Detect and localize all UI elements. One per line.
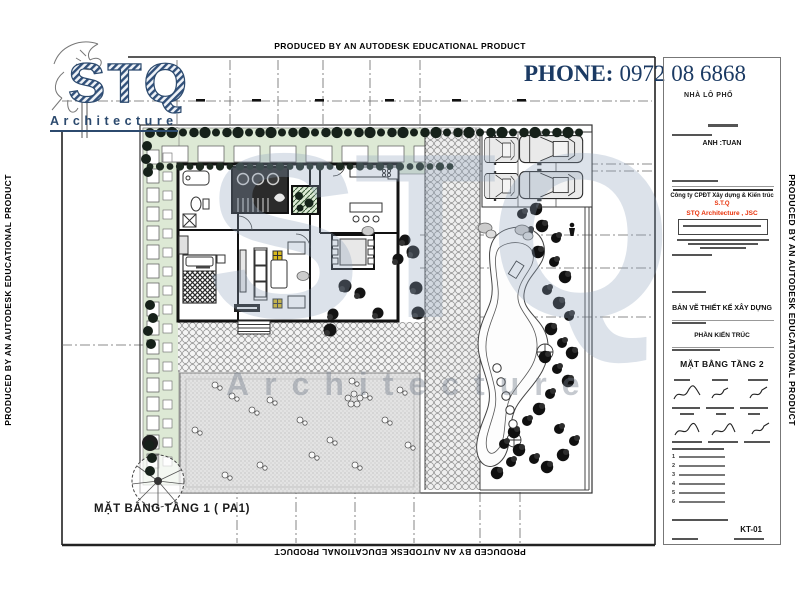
drawing-number: KT-01 — [664, 525, 780, 534]
autodesk-notice-bottom: PRODUCED BY AN AUTODESK EDUCATIONAL PROD… — [0, 547, 800, 557]
note-row: 1 — [672, 454, 725, 460]
divider-rule — [672, 320, 774, 321]
plan-caption: MẶT BẰNG TẦNG 1 ( PA1) — [94, 503, 250, 515]
micro-text-bar — [672, 134, 712, 136]
micro-text-bar — [672, 254, 712, 256]
micro-text-bar — [740, 407, 768, 409]
company-logo: STQ Architecture — [40, 38, 210, 140]
micro-text-bar — [706, 407, 734, 409]
micro-text-bar — [708, 441, 738, 443]
micro-text-bar — [716, 413, 726, 415]
micro-text-bar — [680, 413, 694, 415]
micro-text-bar — [672, 322, 706, 324]
company-stamp-box — [678, 219, 768, 235]
note-row: 5 — [672, 490, 725, 496]
pool-terrace — [180, 373, 420, 493]
note-row: 4 — [672, 481, 725, 487]
micro-text-bar — [672, 448, 724, 450]
micro-text-bar — [688, 243, 758, 245]
logo-word: Architecture — [50, 114, 178, 132]
micro-text-bar — [744, 441, 770, 443]
logo-letters-text: STQ — [68, 51, 189, 114]
title-block: ANH :TUAN Công ty CPĐT Xây dựng & Kiến t… — [663, 57, 781, 545]
drawing-title: MẶT BẰNG TẦNG 2 — [664, 359, 780, 369]
autodesk-notice-left: PRODUCED BY AN AUTODESK EDUCATIONAL PROD… — [3, 174, 13, 426]
micro-text-bar — [748, 413, 760, 415]
planter-box — [292, 186, 318, 214]
micro-text-bar — [673, 189, 773, 191]
micro-text-bar — [708, 124, 738, 127]
doc-type: BẢN VẼ THIẾT KẾ XÂY DỰNG — [664, 305, 780, 312]
company-name-vi: Công ty CPĐT Xây dựng & Kiến trúc — [664, 193, 780, 199]
micro-text-bar — [672, 349, 720, 351]
drawing-sheet: { "notice": { "autodesk": "PRODUCED BY A… — [0, 0, 800, 600]
discipline: PHẦN KIẾN TRÚC — [664, 332, 780, 339]
micro-text-bar — [712, 379, 728, 381]
signature-row-1 — [670, 385, 778, 403]
note-row: 6 — [672, 499, 725, 505]
note-row: 2 — [672, 463, 725, 469]
micro-text-bar — [672, 441, 702, 443]
signature-row-2 — [670, 420, 778, 440]
company-name-en: STQ Architecture , JSC — [664, 210, 780, 217]
micro-text-bar — [672, 407, 700, 409]
micro-text-bar — [672, 538, 698, 540]
micro-text-bar — [748, 379, 768, 381]
company-short: S.T.Q — [664, 201, 780, 207]
micro-text-bar — [700, 247, 746, 249]
micro-text-bar — [672, 519, 728, 521]
autodesk-notice-right: PRODUCED BY AN AUTODESK EDUCATIONAL PROD… — [787, 174, 797, 426]
logo-letters: STQ — [66, 50, 216, 116]
phone-label: PHONE: — [524, 61, 613, 86]
micro-text-bar — [674, 379, 690, 381]
micro-text-bar — [677, 239, 769, 241]
entry-canopy — [232, 167, 288, 213]
micro-text-bar — [672, 291, 706, 293]
dining-set — [332, 239, 374, 265]
paving-strip-vertical — [425, 128, 480, 490]
divider-rule — [672, 186, 774, 187]
porch-steps — [238, 321, 270, 334]
micro-text-bar — [683, 225, 761, 227]
micro-text-bar — [672, 180, 718, 182]
client-name: ANH :TUAN — [664, 140, 780, 147]
divider-rule — [672, 347, 774, 348]
note-row: 3 — [672, 472, 725, 478]
stair-steps — [238, 198, 268, 212]
micro-text-bar — [734, 538, 764, 540]
terrace-paving — [178, 322, 425, 372]
person-symbol — [569, 223, 575, 236]
